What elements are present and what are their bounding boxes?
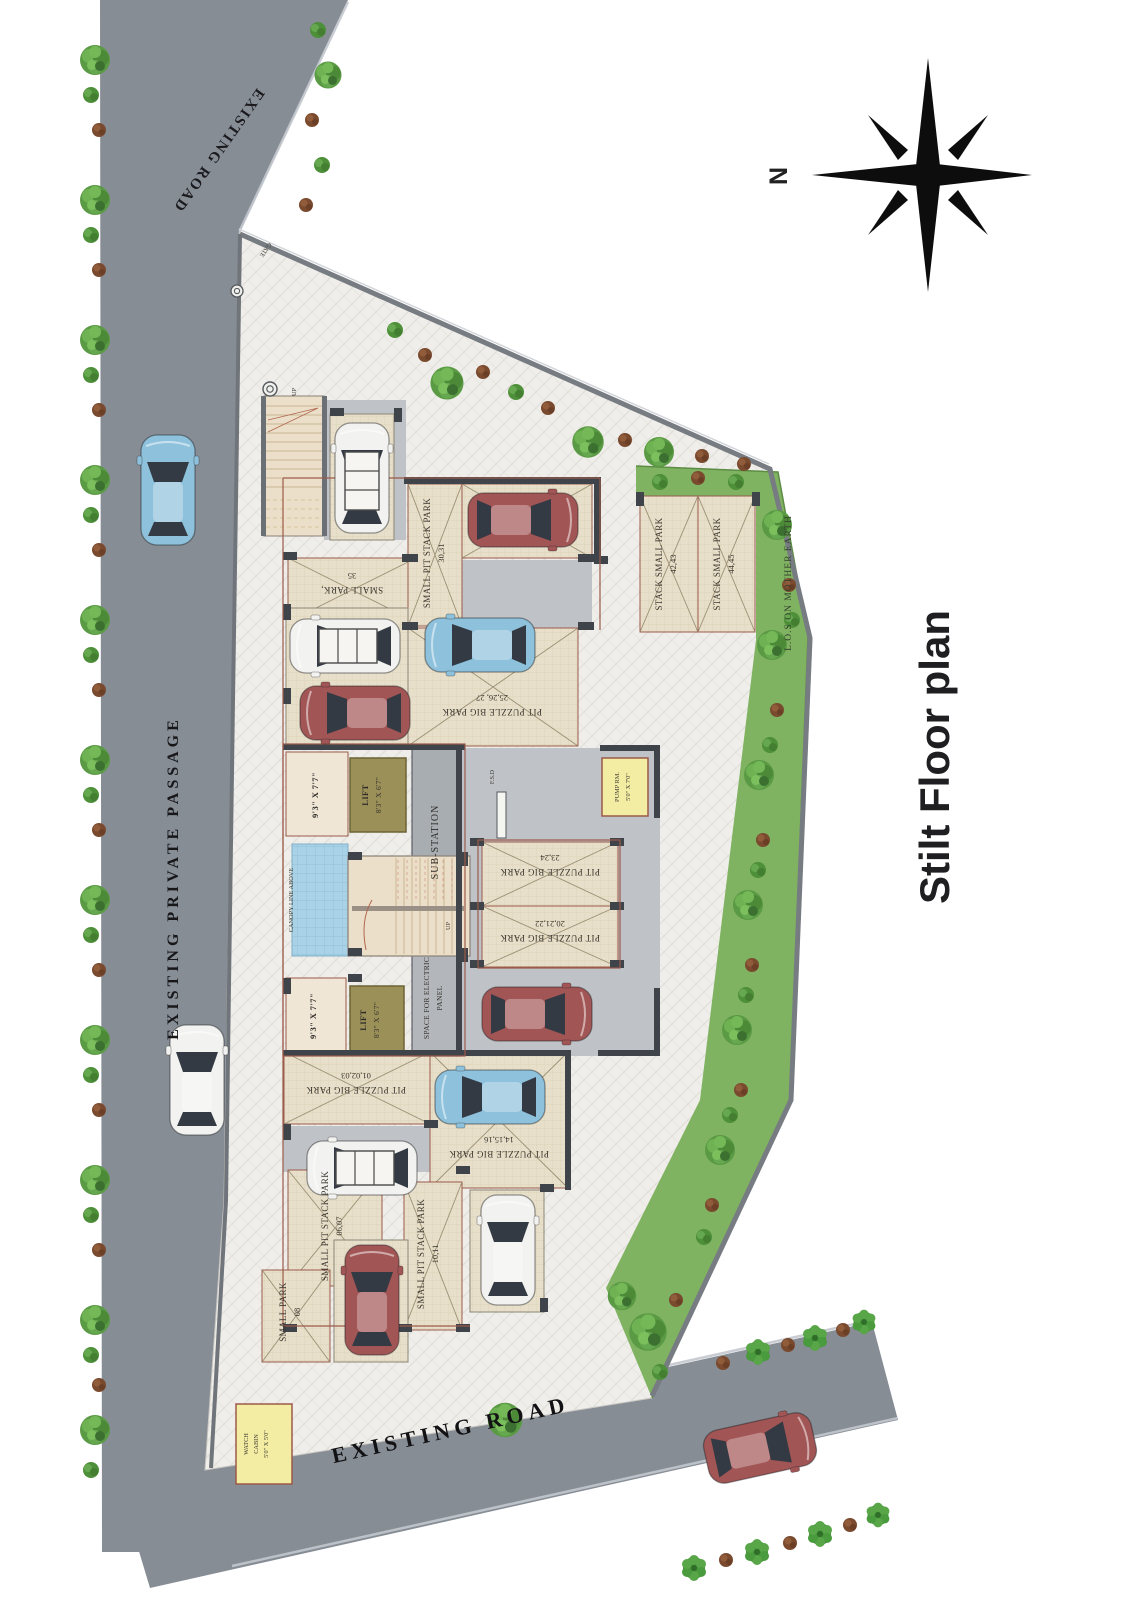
bush-icon	[756, 833, 770, 847]
bush-icon	[92, 683, 106, 697]
bush-icon	[737, 457, 751, 471]
column-mark	[348, 948, 362, 956]
shrub-icon	[83, 927, 99, 943]
car-body	[477, 1195, 539, 1305]
bush-icon	[476, 365, 490, 379]
shrub-icon	[652, 1364, 668, 1380]
column-mark	[752, 492, 760, 506]
shrub-icon	[83, 227, 99, 243]
shrub-icon	[83, 1067, 99, 1083]
bush-icon	[745, 958, 759, 972]
shrub-icon	[722, 1107, 738, 1123]
svg-text:5'0" X 5'0": 5'0" X 5'0"	[263, 1430, 270, 1458]
bush-icon	[92, 1103, 106, 1117]
column-mark	[283, 1124, 291, 1140]
bush-icon	[418, 348, 432, 362]
bush-icon	[92, 263, 106, 277]
car-body	[341, 1245, 403, 1355]
car-blue-icon	[435, 1066, 545, 1128]
column-mark	[610, 838, 624, 846]
column-mark	[283, 688, 291, 704]
column-mark	[460, 852, 468, 866]
canopy-pool	[292, 844, 348, 956]
tree-icon	[80, 325, 110, 355]
column-mark	[636, 492, 644, 506]
column-mark	[540, 1298, 548, 1312]
car-white-stack-icon	[290, 615, 400, 677]
shrub-icon	[738, 987, 754, 1003]
tree-icon	[733, 890, 763, 920]
car-body	[482, 983, 592, 1045]
svg-text:STACK SMALL PARK: STACK SMALL PARK	[712, 517, 722, 610]
bush-icon	[305, 113, 319, 127]
shrub-icon	[750, 862, 766, 878]
palm-tree-icon	[682, 1555, 706, 1581]
bush-icon	[836, 1323, 850, 1337]
column-mark	[460, 948, 468, 962]
tree-icon	[80, 605, 110, 635]
tree-icon	[757, 630, 787, 660]
column-mark	[348, 852, 362, 860]
car-white-stack-icon	[331, 423, 393, 533]
shrub-icon	[652, 474, 668, 490]
column-mark	[578, 622, 594, 630]
shrub-icon	[314, 157, 330, 173]
svg-text:SMALL PIT STACK PARK: SMALL PIT STACK PARK	[320, 1171, 330, 1281]
tree-icon	[80, 885, 110, 915]
tree-icon	[80, 1305, 110, 1335]
svg-text:SMALL PARK,: SMALL PARK,	[321, 585, 383, 595]
column-mark	[470, 902, 484, 910]
column-mark	[594, 556, 608, 564]
svg-text:PIT PUZZLE BIG PARK: PIT PUZZLE BIG PARK	[500, 867, 600, 877]
car-body	[435, 1066, 545, 1128]
column-mark	[398, 1324, 412, 1332]
palm-tree-icon	[867, 1503, 890, 1528]
car-body	[425, 614, 535, 676]
lawn-label: L.O.S ON MOTHER EARTH	[784, 515, 794, 651]
svg-text:42,43: 42,43	[668, 554, 678, 573]
bush-icon	[92, 823, 106, 837]
svg-text:20,21,22: 20,21,22	[535, 919, 565, 929]
tree-icon	[629, 1313, 667, 1351]
svg-text:PIT PUZZLE BIG PARK: PIT PUZZLE BIG PARK	[306, 1085, 406, 1095]
svg-text:CABIN: CABIN	[253, 1434, 260, 1454]
car-red-icon	[482, 983, 592, 1045]
up-label-top-stair: UP	[291, 387, 298, 396]
svg-text:PIT PUZZLE BIG PARK: PIT PUZZLE BIG PARK	[442, 707, 542, 717]
tree-icon	[431, 367, 464, 400]
svg-text:STACK SMALL PARK: STACK SMALL PARK	[654, 517, 664, 610]
column-mark	[610, 902, 624, 910]
column-mark	[283, 978, 291, 994]
stack-platform-grid	[336, 1151, 394, 1185]
stack-platform-grid	[345, 452, 379, 510]
bush-icon	[691, 471, 705, 485]
fsd-duct	[497, 792, 506, 838]
car-red-icon	[468, 489, 578, 551]
palm-tree-icon	[745, 1539, 769, 1565]
car-body	[300, 682, 410, 744]
shrub-icon	[762, 737, 778, 753]
tree-icon	[80, 1415, 110, 1445]
tree-icon	[80, 45, 110, 75]
bush-icon	[781, 1338, 795, 1352]
tree-icon	[80, 465, 110, 495]
column-mark	[540, 1184, 554, 1192]
svg-text:WATCH: WATCH	[243, 1433, 250, 1455]
shrub-icon	[387, 322, 403, 338]
shrub-icon	[508, 384, 524, 400]
svg-text:PIT PUZZLE BIG PARK: PIT PUZZLE BIG PARK	[500, 933, 600, 943]
car-body	[468, 489, 578, 551]
svg-text:14,15,16: 14,15,16	[484, 1135, 514, 1145]
svg-text:23,24: 23,24	[540, 853, 560, 863]
svg-text:30,31: 30,31	[436, 543, 446, 562]
bush-icon	[843, 1518, 857, 1532]
canopy-line-label: CANOPY LINE ABOVE	[288, 868, 295, 933]
svg-text:10,11: 10,11	[430, 1245, 440, 1264]
column-mark	[470, 838, 484, 846]
car-body	[166, 1025, 228, 1135]
svg-text:PANEL: PANEL	[435, 985, 444, 1010]
svg-text:LIFT: LIFT	[360, 784, 370, 805]
svg-text:SMALL PIT STACK PARK: SMALL PIT STACK PARK	[416, 1199, 426, 1309]
column-mark	[456, 1324, 470, 1332]
central-staircase	[348, 856, 470, 956]
substation-label: SUB-STATION	[430, 805, 441, 880]
shrub-icon	[83, 367, 99, 383]
tree-icon	[722, 1015, 752, 1045]
page-title: Stilt Floor plan	[911, 610, 958, 904]
svg-text:SPACE FOR ELECTRIC: SPACE FOR ELECTRIC	[422, 957, 431, 1039]
bush-icon	[92, 1378, 106, 1392]
site-plan-drawing: N Stilt Floor plan EXISTING ROAD EXISTIN…	[0, 0, 1130, 1600]
column-mark	[283, 552, 297, 560]
bush-icon	[92, 1243, 106, 1257]
utility-circle-icon	[263, 382, 277, 396]
tree-icon	[80, 745, 110, 775]
column-mark	[402, 622, 418, 630]
column-mark	[394, 408, 402, 422]
tree-icon	[705, 1135, 735, 1165]
svg-text:01,02,03: 01,02,03	[341, 1071, 371, 1081]
svg-text:8'3" X 6'7": 8'3" X 6'7"	[374, 777, 383, 813]
compass-north-label: N	[765, 167, 793, 185]
tree-icon	[608, 1282, 637, 1311]
shrub-icon	[83, 507, 99, 523]
svg-text:35: 35	[348, 571, 357, 581]
svg-text:06,07: 06,07	[334, 1216, 344, 1235]
utility-circle-icon	[231, 285, 243, 297]
up-label-central-stair: UP	[445, 921, 452, 930]
top-external-stair	[261, 396, 327, 536]
north-compass-icon: N	[765, 58, 1032, 292]
lobby-lower-label: 9'3" X 7'7"	[308, 993, 318, 1039]
bush-icon	[92, 123, 106, 137]
column-mark	[402, 554, 418, 562]
bush-icon	[92, 543, 106, 557]
car-white-icon	[477, 1195, 539, 1305]
fsd-label: F.S.D	[489, 769, 496, 784]
bush-icon	[705, 1198, 719, 1212]
lobby-upper-label: 9'3" X 7'7"	[310, 772, 320, 818]
svg-text:PIT PUZZLE BIG PARK: PIT PUZZLE BIG PARK	[449, 1149, 549, 1159]
bush-icon	[716, 1356, 730, 1370]
bush-icon	[299, 198, 313, 212]
bush-icon	[92, 403, 106, 417]
column-mark	[578, 554, 594, 562]
tree-icon	[744, 760, 774, 790]
svg-text:PUMP RM.: PUMP RM.	[614, 772, 621, 802]
palm-tree-icon	[808, 1521, 832, 1547]
column-mark	[348, 974, 362, 982]
svg-text:08: 08	[292, 1308, 302, 1317]
stilt-floor-plan-sheet: N Stilt Floor plan EXISTING ROAD EXISTIN…	[0, 0, 1130, 1600]
shrub-icon	[83, 1347, 99, 1363]
shrub-icon	[83, 1207, 99, 1223]
bush-icon	[770, 703, 784, 717]
svg-text:5'0" X 7'0": 5'0" X 7'0"	[625, 773, 632, 801]
bush-icon	[669, 1293, 683, 1307]
svg-text:SMALL PIT STACK PARK: SMALL PIT STACK PARK	[422, 498, 432, 608]
tree-icon	[80, 1025, 110, 1055]
svg-text:25,26, 27: 25,26, 27	[476, 693, 508, 703]
shrub-icon	[310, 22, 326, 38]
car-blue-icon	[425, 614, 535, 676]
car-body	[137, 435, 199, 545]
svg-text:8'3" X 6'7": 8'3" X 6'7"	[372, 1002, 381, 1038]
car-red-icon	[300, 682, 410, 744]
tree-icon	[80, 185, 110, 215]
left-passage-label: EXISTING PRIVATE PASSAGE	[165, 716, 182, 1040]
tree-icon	[80, 1165, 110, 1195]
bush-icon	[618, 433, 632, 447]
shrub-icon	[83, 1462, 99, 1478]
column-mark	[424, 1120, 438, 1128]
shrub-icon	[83, 647, 99, 663]
shrub-icon	[83, 787, 99, 803]
column-mark	[283, 604, 291, 620]
column-mark	[456, 1166, 470, 1174]
column-mark	[330, 408, 344, 416]
tree-icon	[572, 426, 604, 458]
column-mark	[610, 960, 624, 968]
stack-platform-grid	[319, 629, 377, 663]
car-white-icon	[166, 1025, 228, 1135]
bush-icon	[695, 449, 709, 463]
shrub-icon	[696, 1229, 712, 1245]
shrub-icon	[83, 87, 99, 103]
bush-icon	[719, 1553, 733, 1567]
svg-text:SMALL PARK: SMALL PARK	[278, 1282, 288, 1342]
tree-icon	[315, 62, 342, 89]
car-red-icon	[341, 1245, 403, 1355]
column-mark	[470, 960, 484, 968]
bush-icon	[541, 401, 555, 415]
car-blue-icon	[137, 435, 199, 545]
bush-icon	[783, 1536, 797, 1550]
bush-icon	[92, 963, 106, 977]
shrub-icon	[728, 474, 744, 490]
tree-icon	[644, 437, 674, 467]
svg-text:44,45: 44,45	[726, 554, 736, 573]
svg-text:LIFT: LIFT	[358, 1009, 368, 1030]
bush-icon	[734, 1083, 748, 1097]
